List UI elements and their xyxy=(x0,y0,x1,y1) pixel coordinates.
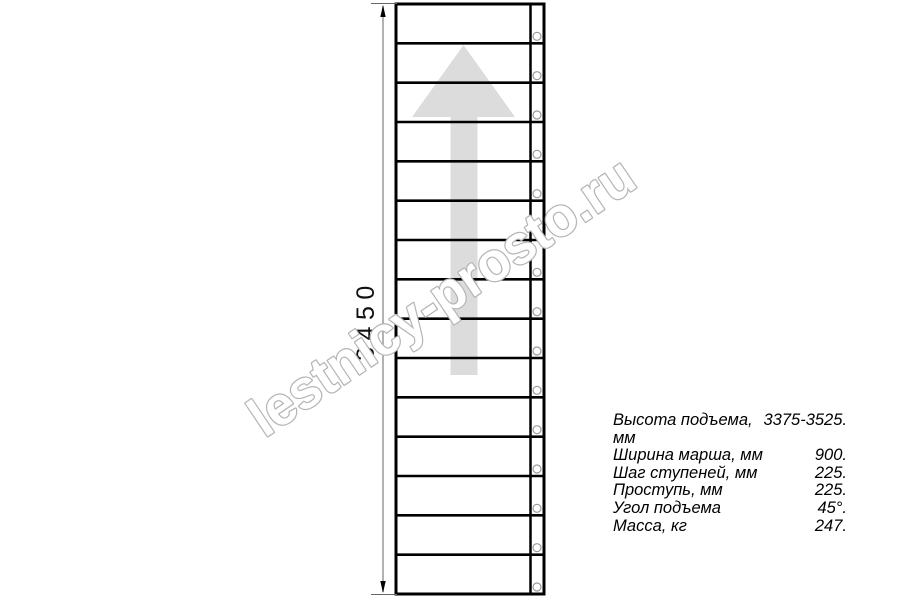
spec-value: 900. xyxy=(807,447,847,465)
spec-table: Высота подъема, мм 3375-3525. Ширина мар… xyxy=(613,412,847,535)
bolt-circle xyxy=(533,426,541,434)
bolt-circle xyxy=(533,32,541,40)
spec-label: Масса, кг xyxy=(613,518,687,536)
spec-label: Высота подъема, мм xyxy=(613,412,756,447)
spec-row: Угол подъема 45°. xyxy=(613,500,847,518)
dimension-arrow-bottom-icon xyxy=(380,581,385,593)
spec-value: 3375-3525. xyxy=(756,412,848,447)
spec-row: Высота подъема, мм 3375-3525. xyxy=(613,412,847,447)
bolt-circle xyxy=(533,504,541,512)
dimension-arrow-top-icon xyxy=(380,5,385,17)
bolt-circle xyxy=(533,386,541,394)
spec-label: Шаг ступеней, мм xyxy=(613,465,757,483)
spec-label: Ширина марша, мм xyxy=(613,447,763,465)
watermark-text: lestnicy-prosto.ru xyxy=(237,144,646,448)
spec-value: 247. xyxy=(807,518,847,536)
bolts-layer xyxy=(533,32,541,591)
spec-row: Шаг ступеней, мм 225. xyxy=(613,465,847,483)
spec-label: Угол подъема xyxy=(613,500,721,518)
bolt-circle xyxy=(533,347,541,355)
spec-value: 225. xyxy=(807,482,847,500)
bolt-circle xyxy=(533,111,541,119)
bolt-circle xyxy=(533,583,541,591)
spec-row: Масса, кг 247. xyxy=(613,518,847,536)
bolt-circle xyxy=(533,544,541,552)
spec-row: Ширина марша, мм 900. xyxy=(613,447,847,465)
spec-label: Проступь, мм xyxy=(613,482,723,500)
spec-value: 225. xyxy=(807,465,847,483)
spec-value: 45°. xyxy=(809,500,847,518)
bolt-circle xyxy=(533,150,541,158)
drawing-canvas: 3450 lestnicy-prosto.ru Высота подъема, … xyxy=(0,0,900,600)
spec-row: Проступь, мм 225. xyxy=(613,482,847,500)
bolt-circle xyxy=(533,308,541,316)
bolt-circle xyxy=(533,465,541,473)
bolt-circle xyxy=(533,72,541,80)
